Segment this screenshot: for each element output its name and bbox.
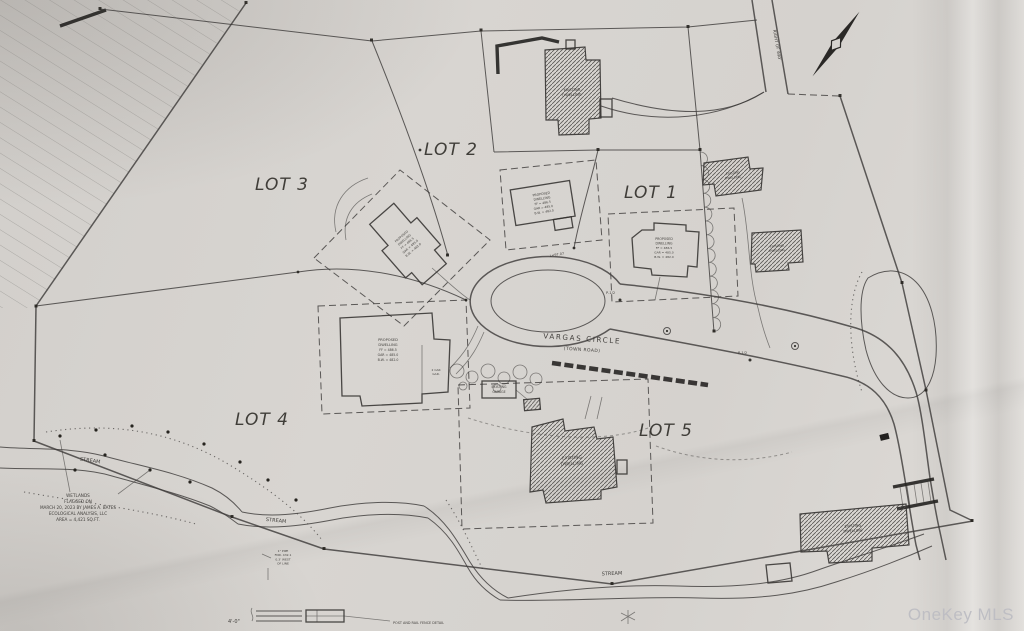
note-line: AREA = 4,421 SQ.FT.	[56, 517, 100, 522]
utility-pole	[619, 299, 622, 302]
road-name-label: VARGAS CIRCLE	[543, 331, 621, 345]
proposed-dwelling-lot4: PROPOSED DWELLING FF = 486.5 GAR = 485.0…	[318, 300, 484, 414]
site-plan-map: RIGHT OF WAY VARGAS CIRCLE (TOWN ROAD) L…	[0, 0, 1024, 631]
note-line: ECOLOGICAL ANALYSIS, LLC	[49, 511, 107, 516]
garage-label: EXISTING	[492, 385, 507, 389]
tree-row-and-wall	[450, 363, 708, 393]
stream-label: STREAM	[80, 457, 101, 466]
proposed-label: PROPOSED	[378, 338, 398, 342]
dwelling-label: DWELLING	[562, 93, 581, 98]
north-arrow-icon	[808, 8, 864, 79]
dwelling-label: EXISTING	[562, 454, 582, 460]
proposed-dwelling-lot1: PROPOSED DWELLING FF = 486.5 GAR = 485.0…	[608, 208, 738, 302]
note-line: OF LINE	[277, 562, 289, 566]
proposed-label: PROPOSED	[655, 237, 673, 241]
existing-dwelling-bottom-right: EXISTING DWELLING	[766, 504, 909, 583]
note-line: FLAGGED ON	[64, 499, 92, 504]
proposed-label: GAR = 485.0	[654, 251, 674, 255]
note-line: MARCH 20, 2023 BY JAMES A. BATES	[40, 505, 116, 510]
legend-dimension: 4'-0"	[228, 619, 240, 625]
scanned-site-plan: RIGHT OF WAY VARGAS CIRCLE (TOWN ROAD) L…	[0, 0, 1024, 631]
lot4-label: LOT 4	[235, 410, 289, 430]
stream-label: STREAM	[266, 517, 287, 525]
legend-fragment: 4'-0" POST AND RAIL FENCE DETAIL	[228, 608, 635, 625]
catch-basin	[879, 433, 889, 441]
existing-dwelling-top: EXISTING DWELLING	[497, 38, 764, 135]
survey-note: 1" PIPE FND. 432.1 0.3' WEST OF LINE	[262, 549, 291, 580]
proposed-label: DWELLING	[656, 242, 673, 246]
proposed-dwelling-lot2: PROPOSED DWELLING FF = 486.5 GAR = 485.0…	[500, 160, 602, 250]
streams: STREAM STREAM STREAM	[0, 418, 932, 600]
existing-dwelling-right-1: EXISTING DWELLING	[703, 157, 763, 196]
existing-dwelling-right-2: EXISTING DWELLING	[742, 198, 803, 348]
adjacent-parcel-hatch	[0, 0, 246, 308]
pole-label: P-1/2	[606, 291, 615, 295]
lot1-label: LOT 1	[624, 183, 678, 203]
watermark: OneKey MLS	[908, 605, 1014, 625]
road-type-label: (TOWN ROAD)	[564, 346, 601, 355]
lot5-label: LOT 5	[639, 421, 693, 441]
right-of-way-label: RIGHT OF WAY	[772, 29, 782, 60]
garage-label: GARAGE	[492, 390, 505, 394]
stone-wall	[552, 363, 708, 385]
lot2-label: LOT 2	[424, 140, 478, 160]
lot3-label: LOT 3	[255, 175, 309, 195]
proposed-label: B.W. = 482.0	[378, 358, 399, 362]
right-of-way: RIGHT OF WAY	[612, 0, 788, 112]
dwelling-label: EXISTING	[563, 88, 580, 93]
legend-tree-symbol	[621, 610, 635, 624]
proposed-label: B.W. = 482.0	[654, 255, 674, 259]
garage-label: GAR.	[432, 372, 439, 376]
culdesac-island	[491, 270, 605, 332]
utility-pole	[749, 359, 752, 362]
lotline-3-4	[36, 269, 466, 306]
legend-detail-label: POST AND RAIL FENCE DETAIL	[393, 621, 444, 625]
boundary-east	[902, 283, 973, 521]
proposed-label: FF = 486.5	[379, 348, 397, 352]
pole-label: P-1/2	[738, 351, 747, 355]
proposed-label: FF = 486.5	[656, 246, 673, 250]
proposed-dwelling-lot3: PROPOSED DWELLING FF = 486.5 GAR = 485.0…	[314, 170, 490, 326]
stream-label: STREAM	[602, 571, 623, 578]
wetlands-note: WETLANDS FLAGGED ON MARCH 20, 2023 BY JA…	[40, 493, 116, 522]
lotline-2-1	[574, 150, 598, 248]
driveway-top	[612, 92, 764, 112]
note-line: WETLANDS	[66, 493, 90, 498]
existing-dwelling-lot5: EXISTING DWELLING EXISTING GARAGE	[458, 379, 653, 529]
proposed-label: DWELLING	[378, 343, 397, 347]
proposed-label: GAR = 485.0	[378, 353, 399, 357]
